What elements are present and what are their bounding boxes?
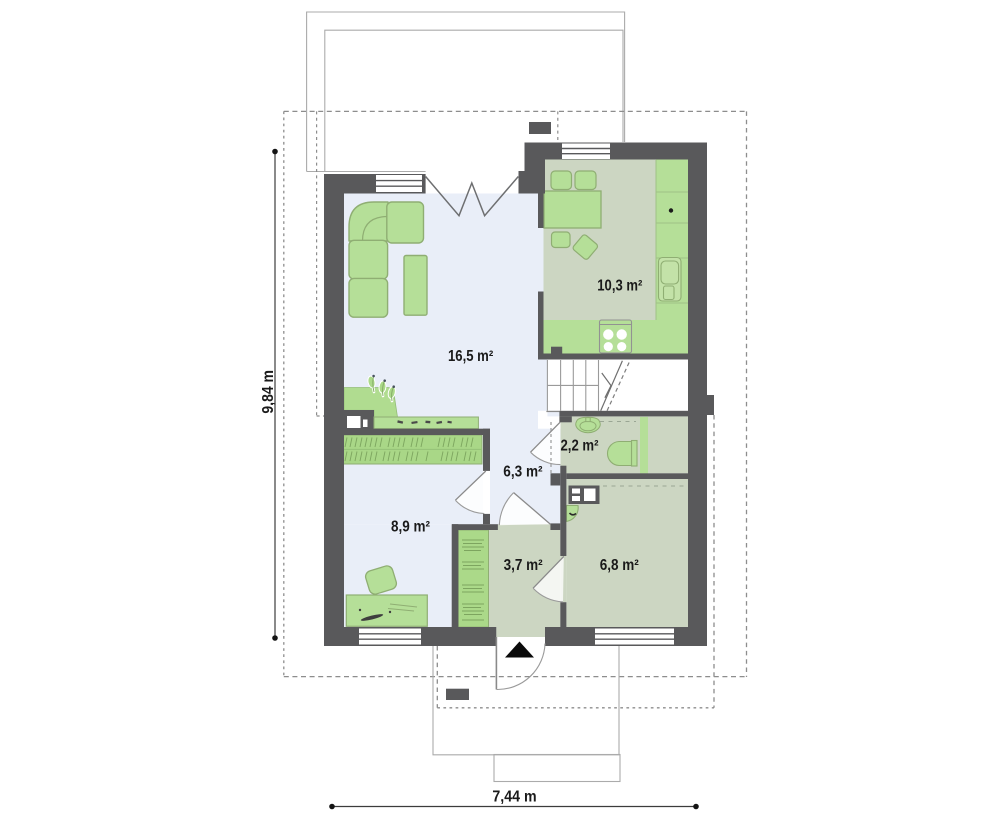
svg-text:10,3 m²: 10,3 m²: [597, 278, 642, 295]
svg-text:16,5 m²: 16,5 m²: [448, 348, 493, 365]
svg-text:6,8 m²: 6,8 m²: [600, 557, 639, 574]
svg-text:8,9 m²: 8,9 m²: [391, 518, 430, 535]
svg-text:2,2 m²: 2,2 m²: [561, 438, 599, 455]
svg-text:7,44 m: 7,44 m: [492, 789, 536, 806]
svg-text:3,7 m²: 3,7 m²: [504, 557, 543, 574]
svg-text:9,84 m: 9,84 m: [260, 370, 277, 414]
svg-text:6,3 m²: 6,3 m²: [503, 464, 542, 481]
